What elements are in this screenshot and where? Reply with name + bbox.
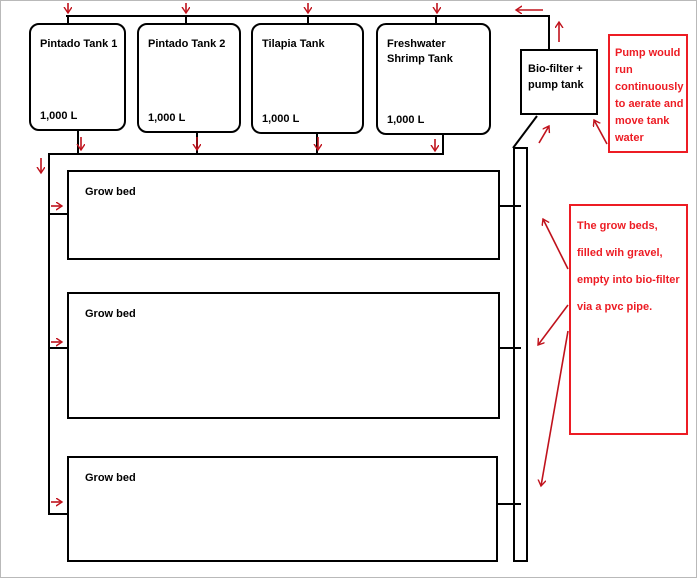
note-pointer-arrow-icon xyxy=(543,219,568,269)
tank-volume: 1,000 L xyxy=(387,114,424,126)
freshwater-shrimp-tank: Freshwater Shrimp Tank 1,000 L xyxy=(376,23,491,135)
note-pointer-arrow-icon xyxy=(594,120,607,144)
tank-name: Freshwater Shrimp Tank xyxy=(387,37,483,67)
note-pointer-arrow-icon xyxy=(541,331,568,486)
grow-bed-label: Grow bed xyxy=(85,186,136,198)
growbed-note: The grow beds, filled wih gravel, empty … xyxy=(569,204,688,435)
grow-bed-1: Grow bed xyxy=(67,170,500,260)
biofilter-pump-tank: Bio-filter + pump tank xyxy=(520,49,598,115)
pvc-pipe xyxy=(513,147,528,562)
note-pointer-arrow-icon xyxy=(538,305,568,345)
pump-note: Pump would run continuously to aerate an… xyxy=(608,34,688,153)
biofilter-label: Bio-filter + pump tank xyxy=(528,61,592,93)
tank-name: Pintado Tank 1 xyxy=(40,37,118,52)
pintado-tank-1: Pintado Tank 1 1,000 L xyxy=(29,23,126,131)
grow-bed-label: Grow bed xyxy=(85,472,136,484)
tank-volume: 1,000 L xyxy=(148,112,185,124)
grow-bed-label: Grow bed xyxy=(85,308,136,320)
pintado-tank-2: Pintado Tank 2 1,000 L xyxy=(137,23,241,133)
grow-bed-3: Grow bed xyxy=(67,456,498,562)
tank-name: Tilapia Tank xyxy=(262,37,356,52)
pipe-to-biofilter-line xyxy=(513,116,537,148)
tank-volume: 1,000 L xyxy=(262,113,299,125)
flow-arrow-diagonal-icon xyxy=(539,126,549,143)
tank-volume: 1,000 L xyxy=(40,110,77,122)
aquaponics-diagram: Pintado Tank 1 1,000 L Pintado Tank 2 1,… xyxy=(0,0,697,578)
grow-bed-2: Grow bed xyxy=(67,292,500,419)
tank-name: Pintado Tank 2 xyxy=(148,37,233,52)
tilapia-tank: Tilapia Tank 1,000 L xyxy=(251,23,364,134)
